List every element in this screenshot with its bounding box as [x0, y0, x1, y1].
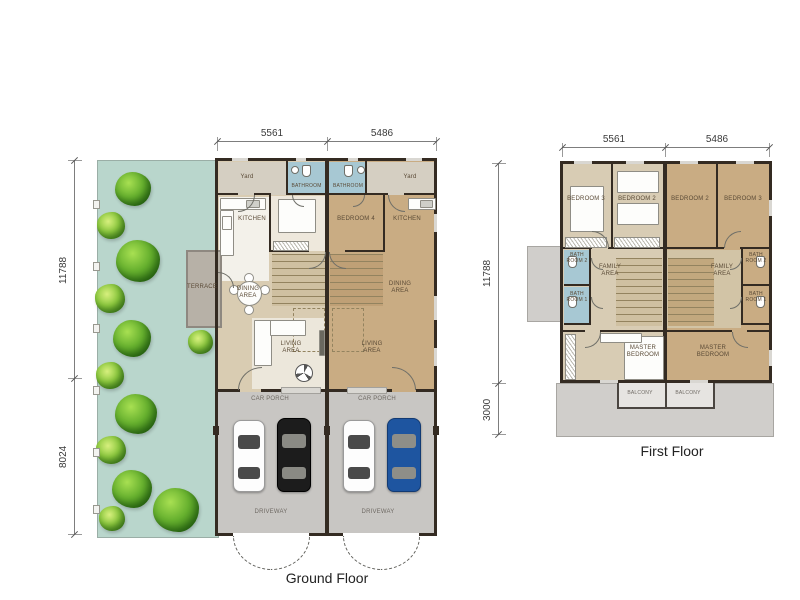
- dim-gf-top-left: 5561: [227, 128, 317, 139]
- tree-icon: [113, 320, 151, 357]
- window: [296, 158, 306, 161]
- sink-icon: [291, 166, 299, 174]
- window: [232, 158, 248, 161]
- dining-right-label: DINING AREA: [385, 281, 415, 295]
- car-windshield: [238, 435, 260, 449]
- dimension-line: [498, 163, 499, 435]
- wall: [309, 533, 343, 536]
- bathroom2-left-label: BATH ROOM 2: [565, 253, 589, 265]
- window: [348, 158, 358, 161]
- car-rear-glass: [392, 467, 416, 479]
- bed-glyph: [617, 203, 659, 225]
- wall: [365, 160, 367, 195]
- wall: [743, 323, 770, 325]
- gate-arc: [233, 536, 272, 570]
- tree-icon: [112, 470, 152, 508]
- driveway-left-label: DRIVEWAY: [241, 509, 301, 516]
- tree-icon: [116, 240, 160, 282]
- car-white-icon: [343, 420, 375, 492]
- bed-glyph: [570, 186, 604, 232]
- palm-tree-icon: [95, 284, 125, 313]
- wall: [404, 193, 435, 195]
- balcony-right-label: BALCONY: [667, 391, 709, 397]
- porch-pillar: [324, 426, 330, 435]
- gate-arc: [343, 536, 382, 570]
- car-porch-right-label: CAR PORCH: [347, 396, 407, 403]
- wall: [564, 284, 590, 286]
- bedroom2-left-label: BEDROOM 2: [615, 196, 659, 203]
- toilet-icon: [302, 165, 311, 177]
- kitchen-sink: [420, 200, 433, 208]
- yard-left-label: Yard: [227, 174, 267, 181]
- dim-gf-side-upper: 11788: [58, 230, 69, 310]
- bedroom3-right-label: BEDROOM 3: [721, 196, 765, 203]
- kitchen-left-label: KITCHEN: [232, 216, 272, 223]
- dim-ff-side-lower: 3000: [482, 388, 493, 432]
- window: [574, 161, 592, 164]
- car-black-icon: [277, 418, 311, 492]
- dim-ff-top-left: 5561: [568, 134, 660, 145]
- bathroom-right-label: BATHROOM: [329, 184, 367, 190]
- bathroom-left-label: BATHROOM: [288, 184, 325, 190]
- wall: [419, 533, 437, 536]
- fence-post: [93, 200, 100, 209]
- car-porch-left-label: CAR PORCH: [240, 396, 300, 403]
- wall: [434, 392, 437, 536]
- floorplan-canvas: Yard Yard BATHROOM BATHROOM KITCHEN KITC…: [0, 0, 800, 600]
- porch-pillar: [433, 426, 439, 435]
- wardrobe-glyph: [273, 241, 309, 251]
- dim-gf-side-lower: 8024: [58, 425, 69, 489]
- window: [626, 161, 644, 164]
- bedroom4-label: BEDROOM 4: [334, 216, 378, 223]
- bathroom2-right-label: BATH ROOM 2: [744, 253, 768, 265]
- wall: [743, 284, 770, 286]
- window: [434, 348, 437, 366]
- wall: [215, 392, 218, 536]
- yard-right-label: Yard: [390, 174, 430, 181]
- fence-post: [93, 324, 100, 333]
- wardrobe-glyph: [565, 334, 576, 380]
- bedroom3-left-label: BEDROOM 3: [564, 196, 608, 203]
- wall: [747, 330, 770, 332]
- balcony-left-label: BALCONY: [619, 391, 661, 397]
- wall: [600, 330, 732, 332]
- wall: [716, 161, 718, 249]
- gate-arc: [271, 536, 310, 570]
- wall: [215, 533, 233, 536]
- chair-glyph: [244, 305, 254, 315]
- master-left-label: MASTER BEDROOM: [621, 345, 665, 359]
- wall: [560, 161, 563, 383]
- car-rear-glass: [238, 467, 260, 479]
- fence-post: [93, 448, 100, 457]
- stove-icon: [222, 216, 232, 230]
- bedroom2-right-label: BEDROOM 2: [668, 196, 712, 203]
- palm-tree-icon: [99, 506, 125, 531]
- tree-icon: [115, 394, 157, 434]
- driveway-right-label: DRIVEWAY: [348, 509, 408, 516]
- car-rear-glass: [348, 467, 370, 479]
- dim-gf-top-right: 5486: [337, 128, 427, 139]
- balcony-door: [600, 380, 618, 383]
- sofa-glyph: [270, 320, 306, 336]
- kitchen-right-label: KITCHEN: [387, 216, 427, 223]
- bed-glyph: [617, 171, 659, 193]
- toilet-icon: [344, 165, 353, 177]
- wall: [286, 160, 288, 195]
- palm-tree-icon: [96, 436, 126, 464]
- dim-ff-side-upper: 11788: [482, 233, 493, 313]
- entry-step: [281, 387, 321, 394]
- wall: [345, 250, 385, 252]
- window: [680, 161, 698, 164]
- tree-icon: [153, 488, 199, 532]
- first-floor-title: First Floor: [612, 443, 732, 459]
- porch-pillar: [213, 426, 219, 435]
- living-right-label: LIVING AREA: [357, 341, 387, 355]
- ceiling-fan-icon: [295, 364, 313, 382]
- fence-post: [93, 505, 100, 514]
- wall: [562, 330, 585, 332]
- master-right-label: MASTER BEDROOM: [691, 345, 735, 359]
- party-wall: [325, 158, 329, 536]
- balcony-door: [690, 380, 708, 383]
- window: [769, 350, 772, 366]
- car-windshield: [348, 435, 370, 449]
- ff-terrace-roof: [527, 246, 563, 322]
- family-left-label: FAMILY AREA: [592, 264, 628, 278]
- wall: [611, 161, 613, 249]
- window: [406, 158, 422, 161]
- fence-post: [93, 262, 100, 271]
- entry-step: [347, 387, 387, 394]
- palm-tree-icon: [97, 212, 125, 239]
- dining-left-label: DINING AREA: [233, 286, 263, 300]
- gate-arc: [381, 536, 420, 570]
- window: [736, 161, 754, 164]
- dimension-line: [74, 160, 75, 535]
- car-windshield: [392, 434, 416, 448]
- bathroom1-right-label: BATH ROOM 1: [744, 292, 768, 304]
- car-blue-icon: [387, 418, 421, 492]
- wall: [217, 193, 238, 195]
- car-windshield: [282, 434, 306, 448]
- terrace-label: TERRACE: [186, 284, 218, 291]
- wall: [383, 193, 385, 252]
- palm-tree-icon: [96, 362, 124, 389]
- dim-ff-top-right: 5486: [671, 134, 763, 145]
- fence-post: [93, 386, 100, 395]
- palm-tree-icon: [188, 330, 213, 354]
- wall: [215, 389, 240, 392]
- living-left-label: LIVING AREA: [276, 341, 306, 355]
- window: [434, 296, 437, 320]
- dresser-glyph: [600, 333, 642, 343]
- bathroom1-left-label: BATH ROOM 1: [565, 292, 589, 304]
- wall: [740, 247, 770, 249]
- ground-floor-title: Ground Floor: [267, 570, 387, 586]
- car-white-icon: [233, 420, 265, 492]
- window: [769, 200, 772, 216]
- sink-icon: [357, 166, 365, 174]
- tv-glyph: [319, 330, 325, 356]
- wall: [564, 323, 590, 325]
- family-right-label: FAMILY AREA: [704, 264, 740, 278]
- car-rear-glass: [282, 467, 306, 479]
- wardrobe-glyph: [614, 237, 660, 248]
- tree-icon: [115, 172, 151, 206]
- window: [434, 214, 437, 232]
